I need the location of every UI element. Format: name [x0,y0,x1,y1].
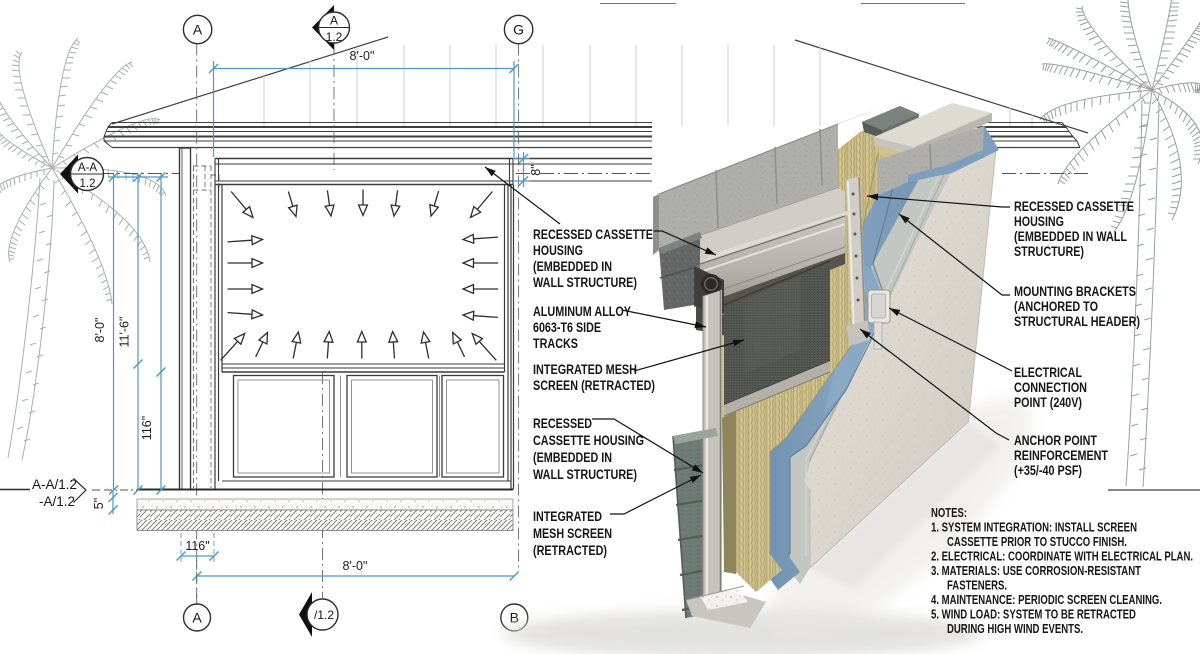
svg-text:STRUCTURE): STRUCTURE) [1014,244,1084,259]
svg-text:116": 116" [140,416,154,440]
svg-text:6063-T6 SIDE: 6063-T6 SIDE [533,320,601,335]
svg-text:STRUCTURAL HEADER): STRUCTURAL HEADER) [1014,314,1140,329]
svg-text:CONNECTION: CONNECTION [1014,380,1087,395]
svg-text:A: A [192,610,202,626]
svg-text:-A/1.2: -A/1.2 [39,494,75,509]
svg-text:NOTES:: NOTES: [931,506,967,520]
svg-text:RECESSED: RECESSED [533,416,592,431]
svg-text:MESH SCREEN: MESH SCREEN [533,526,612,541]
svg-text:A-A: A-A [78,162,98,174]
svg-text:11'-6": 11'-6" [118,317,132,348]
svg-text:A: A [330,14,338,28]
svg-text:ELECTRICAL: ELECTRICAL [1014,365,1082,380]
svg-text:4. MAINTENANCE: PERIODIC SCREE: 4. MAINTENANCE: PERIODIC SCREEN CLEANING… [931,593,1162,607]
svg-text:8'-0": 8'-0" [93,318,107,343]
svg-text:8'-0": 8'-0" [343,559,368,573]
svg-text:1. SYSTEM INTEGRATION: INSTALL: 1. SYSTEM INTEGRATION: INSTALL SCREEN [931,521,1137,535]
svg-text:ANCHOR POINT: ANCHOR POINT [1014,433,1098,448]
svg-text:HOUSING: HOUSING [1014,214,1064,229]
svg-text:(+35/-40 PSF): (+35/-40 PSF) [1014,463,1082,478]
svg-text:MOUNTING BRACKETS: MOUNTING BRACKETS [1014,284,1136,299]
svg-text:1.2: 1.2 [80,178,96,190]
svg-text:DURING HIGH WIND EVENTS.: DURING HIGH WIND EVENTS. [947,622,1083,636]
svg-text:(EMBEDDED IN WALL: (EMBEDDED IN WALL [1014,229,1127,244]
svg-text:FASTENERS.: FASTENERS. [947,579,1007,593]
svg-text:INTEGRATED: INTEGRATED [533,509,602,524]
svg-text:A-A/1.2: A-A/1.2 [32,477,77,492]
svg-text:REINFORCEMENT: REINFORCEMENT [1014,448,1109,463]
svg-text:1.2: 1.2 [326,30,343,44]
svg-text:RECESSED CASSETTE: RECESSED CASSETTE [533,227,653,242]
svg-text:SCREEN (RETRACTED): SCREEN (RETRACTED) [533,378,655,393]
svg-text:2. ELECTRICAL: COORDINATE WITH: 2. ELECTRICAL: COORDINATE WITH ELECTRICA… [931,550,1193,564]
svg-text:POINT (240V): POINT (240V) [1014,395,1082,410]
svg-text:5. WIND LOAD: SYSTEM TO BE RET: 5. WIND LOAD: SYSTEM TO BE RETRACTED [931,608,1136,622]
svg-text:ALUMINUM ALLOY: ALUMINUM ALLOY [533,304,631,319]
svg-text:(ANCHORED TO: (ANCHORED TO [1014,299,1098,314]
svg-text:5": 5" [92,498,106,509]
svg-text:RECESSED CASSETTE: RECESSED CASSETTE [1014,199,1134,214]
svg-text:(EMBEDDED IN: (EMBEDDED IN [533,450,612,465]
svg-text:B: B [510,610,519,626]
svg-text:WALL STRUCTURE): WALL STRUCTURE) [533,275,637,290]
svg-text:3. MATERIALS: USE CORROSION-RE: 3. MATERIALS: USE CORROSION-RESISTANT [931,564,1141,578]
svg-text:/1.2: /1.2 [314,608,334,622]
svg-text:CASSETTE PRIOR TO STUCCO FINIS: CASSETTE PRIOR TO STUCCO FINISH. [947,535,1127,549]
svg-text:TRACKS: TRACKS [533,336,578,351]
svg-text:G: G [513,22,524,38]
svg-text:8": 8" [529,164,543,175]
svg-text:116": 116" [185,539,209,553]
svg-text:INTEGRATED MESH: INTEGRATED MESH [533,362,637,377]
svg-text:A: A [193,22,203,38]
svg-text:HOUSING: HOUSING [533,243,583,258]
svg-text:8'-0": 8'-0" [350,49,375,63]
svg-text:CASSETTE HOUSING: CASSETTE HOUSING [533,433,644,448]
svg-text:(EMBEDDED IN: (EMBEDDED IN [533,259,612,274]
svg-text:WALL STRUCTURE): WALL STRUCTURE) [533,467,637,482]
svg-text:(RETRACTED): (RETRACTED) [533,543,607,558]
